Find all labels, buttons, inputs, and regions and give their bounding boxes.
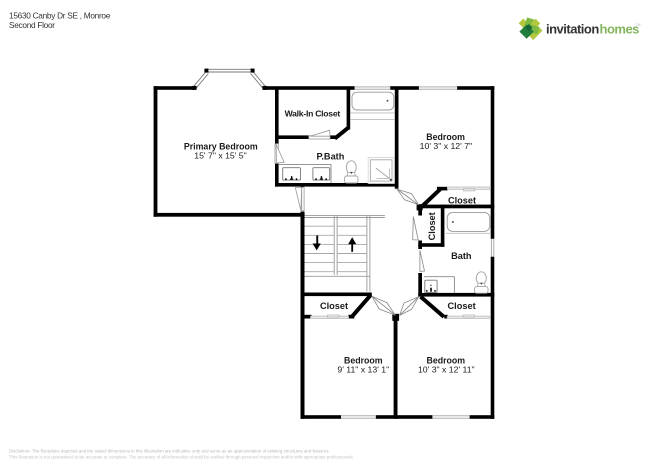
svg-text:15' 7" x 15' 5": 15' 7" x 15' 5" (194, 151, 246, 161)
svg-text:Closet: Closet (448, 195, 476, 205)
svg-text:invitation: invitation (546, 21, 599, 36)
svg-text:Closet: Closet (320, 301, 348, 311)
svg-text:P.Bath: P.Bath (316, 151, 344, 161)
svg-text:Disclaimer: The floorplans dep: Disclaimer: The floorplans depicted and … (9, 448, 330, 453)
svg-text:Bath: Bath (451, 251, 472, 261)
svg-text:Walk-In Closet: Walk-In Closet (285, 108, 341, 118)
svg-text:10' 3" x 12' 11": 10' 3" x 12' 11" (418, 365, 475, 375)
svg-text:10' 3" x 12' 7": 10' 3" x 12' 7" (420, 141, 472, 151)
svg-text:9' 11" x 13' 1": 9' 11" x 13' 1" (337, 365, 389, 375)
svg-text:Closet: Closet (448, 301, 476, 311)
svg-text:Closet: Closet (427, 212, 437, 240)
svg-text:This illustration is not guara: This illustration is not guaranteed to b… (9, 455, 354, 460)
svg-text:Second Floor: Second Floor (9, 20, 55, 30)
svg-text:homes: homes (600, 21, 640, 36)
svg-text:TM: TM (636, 23, 641, 27)
